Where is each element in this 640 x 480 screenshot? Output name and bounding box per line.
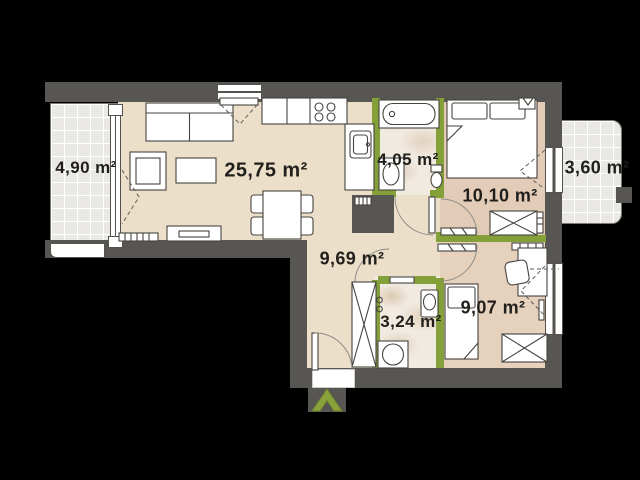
room-label-bedroom-1: 10,10 m²	[462, 186, 537, 207]
partition-wc-left	[372, 280, 380, 368]
wall-top	[45, 82, 562, 102]
room-label-living-room: 25,75 m²	[224, 160, 307, 183]
partition-bed1-bed2	[436, 235, 546, 242]
entrance-opening	[312, 369, 355, 388]
balcony-left-railing	[50, 243, 105, 258]
room-label-bathroom: 4,05 m²	[377, 150, 438, 170]
bathroom-floor	[374, 98, 444, 195]
balcony-left-door-cap-top	[108, 104, 123, 116]
room-label-balcony-left: 4,90 m²	[55, 158, 116, 178]
partition-wc-top-left	[378, 276, 390, 284]
shaft	[352, 195, 394, 233]
wall-hall-left	[290, 247, 307, 368]
partition-kitchen-bath	[372, 98, 380, 195]
bedroom-2-window	[545, 263, 563, 335]
room-label-bedroom-2: 9,07 m²	[461, 298, 526, 319]
room-label-hallway: 9,69 m²	[320, 249, 385, 270]
balcony-left-door-cap-bottom	[108, 236, 123, 248]
partition-wc-top-right	[414, 276, 436, 284]
bedroom-1-floor	[440, 98, 545, 238]
balcony-right-door	[545, 147, 563, 193]
partition-bath-door-right	[430, 190, 444, 197]
room-label-balcony-right: 3,60 m²	[565, 158, 630, 179]
wall-right	[545, 102, 562, 388]
living-window	[217, 84, 262, 100]
floor-plan: 4,90 m² 25,75 m² 4,05 m² 10,10 m² 3,60 m…	[0, 0, 640, 480]
wall-nub-right	[616, 187, 632, 203]
room-label-wc: 3,24 m²	[380, 312, 441, 332]
partition-bath-bedroom1	[436, 98, 444, 198]
entrance-stoop	[308, 386, 346, 412]
